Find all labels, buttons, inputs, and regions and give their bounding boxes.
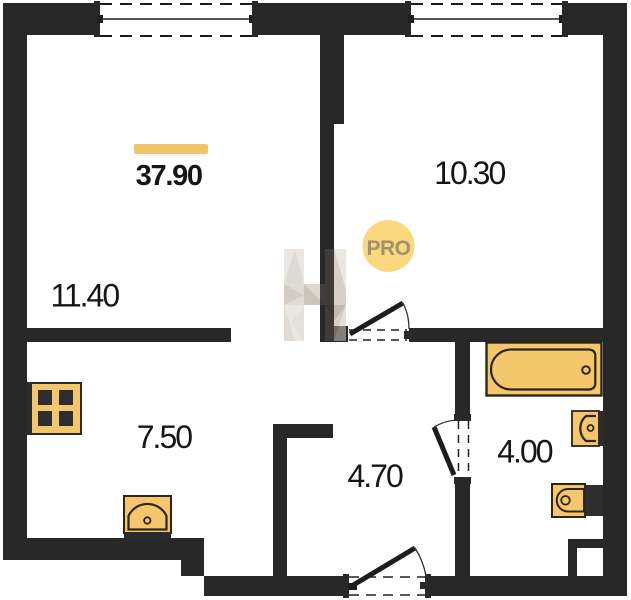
svg-text:7.50: 7.50: [137, 419, 192, 455]
svg-text:4.70: 4.70: [347, 458, 402, 494]
svg-text:PRO: PRO: [366, 237, 410, 260]
svg-text:10.30: 10.30: [434, 155, 505, 191]
svg-text:11.40: 11.40: [50, 278, 119, 314]
svg-text:4.00: 4.00: [497, 434, 552, 470]
svg-text:37.90: 37.90: [136, 160, 202, 192]
